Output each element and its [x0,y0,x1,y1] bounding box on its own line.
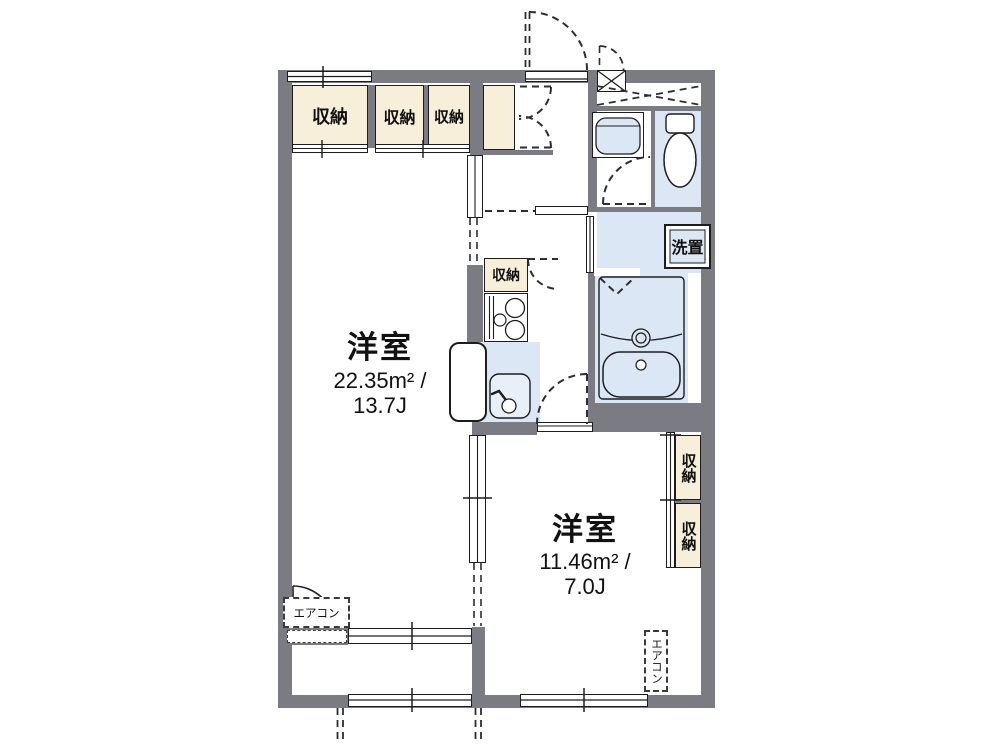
shoe-closet-arc-bottom [519,116,551,148]
toilet-tank-icon [666,114,694,133]
washer-space-label: 洗置 [664,233,711,259]
bedroom-closet-top-label: 収納 [676,438,700,498]
dk-bedroom-door-arc [537,374,587,424]
meter-box-door-arc [600,46,624,70]
aircon-living-label: エアコン [283,597,350,628]
closet-1-label: 収納 [292,103,368,129]
bathtub-icon [603,352,680,397]
stove-burner-2 [506,321,525,340]
bedroom-closet-bottom-label: 収納 [676,506,700,566]
bath-folding-door [600,278,634,294]
toilet-bowl-icon [664,133,696,187]
living-room-area-jo: 13.7J [300,393,460,419]
plan-linework [0,0,989,751]
sink-drain [502,399,516,413]
bathtub-drain [636,360,646,370]
entrance-door-arc [529,12,587,70]
shoe-closet-arc-top [519,87,551,119]
bedroom-name: 洋室 [525,508,645,544]
living-room-area-m2: 22.35m² / [300,368,460,394]
aircon-bedroom-label: エアコン [644,631,668,691]
washroom-door-arc [603,157,650,204]
living-room-name: 洋室 [320,326,440,362]
bedroom-area-jo: 7.0J [505,574,665,600]
stove-knob [494,314,506,326]
bath-drain-outer [632,329,650,347]
kitchen-closet-label: 収納 [484,262,528,288]
floor-plan: 洋室 22.35m² / 13.7J 洋室 11.46m² / 7.0J 収納 … [0,0,989,751]
closet-2-label: 収納 [375,103,424,129]
stove-burner-1 [506,299,525,318]
bedroom-area-m2: 11.46m² / [505,549,665,575]
washbasin-bowl-icon [596,118,640,154]
kitchen-closet-arc [528,259,558,289]
closet-3-label: 収納 [428,103,470,129]
